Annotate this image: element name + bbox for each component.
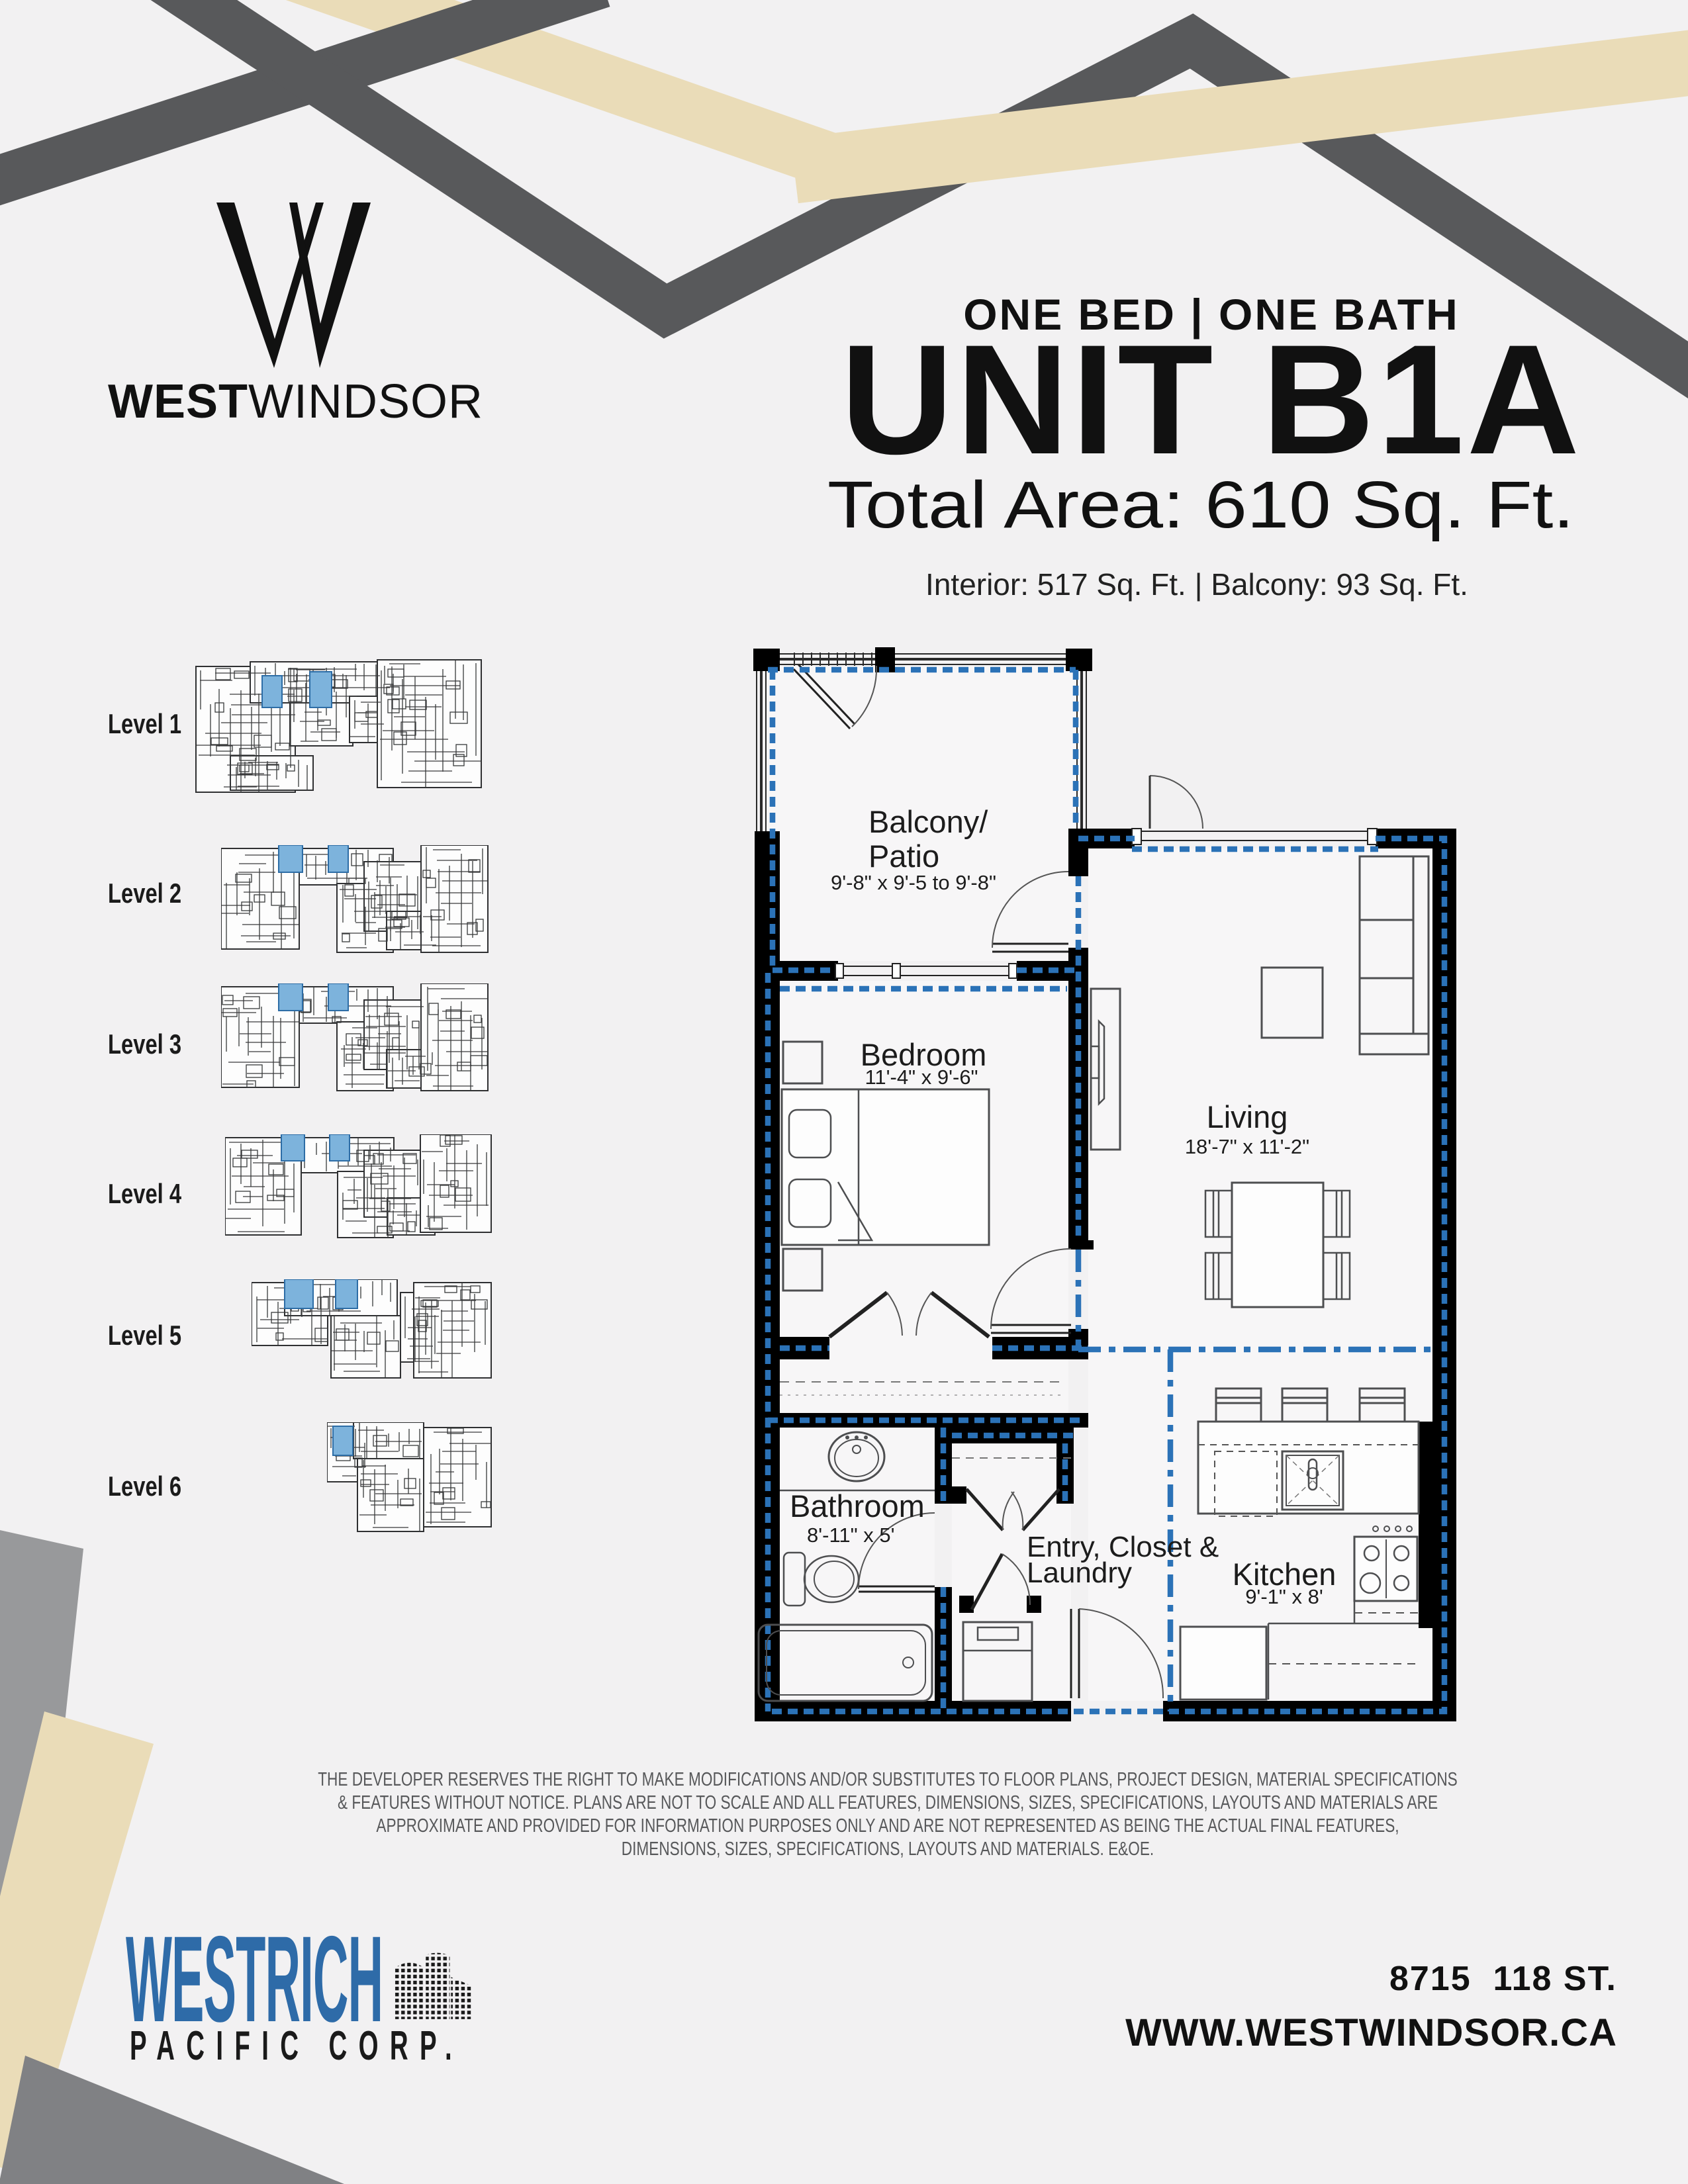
svg-text:Patio: Patio <box>868 839 939 874</box>
svg-text:Living: Living <box>1207 1099 1288 1134</box>
svg-text:9'-8" x 9'-5 to 9'-8": 9'-8" x 9'-5 to 9'-8" <box>831 871 996 894</box>
svg-text:8'-11" x 5': 8'-11" x 5' <box>807 1524 895 1547</box>
svg-text:Bathroom: Bathroom <box>790 1488 925 1524</box>
svg-text:Balcony/: Balcony/ <box>868 804 988 839</box>
svg-text:11'-4" x 9'-6": 11'-4" x 9'-6" <box>865 1066 978 1089</box>
svg-text:18'-7" x 11'-2": 18'-7" x 11'-2" <box>1185 1135 1309 1158</box>
svg-text:Laundry: Laundry <box>1027 1557 1132 1589</box>
svg-text:9'-1" x 8': 9'-1" x 8' <box>1245 1585 1323 1608</box>
